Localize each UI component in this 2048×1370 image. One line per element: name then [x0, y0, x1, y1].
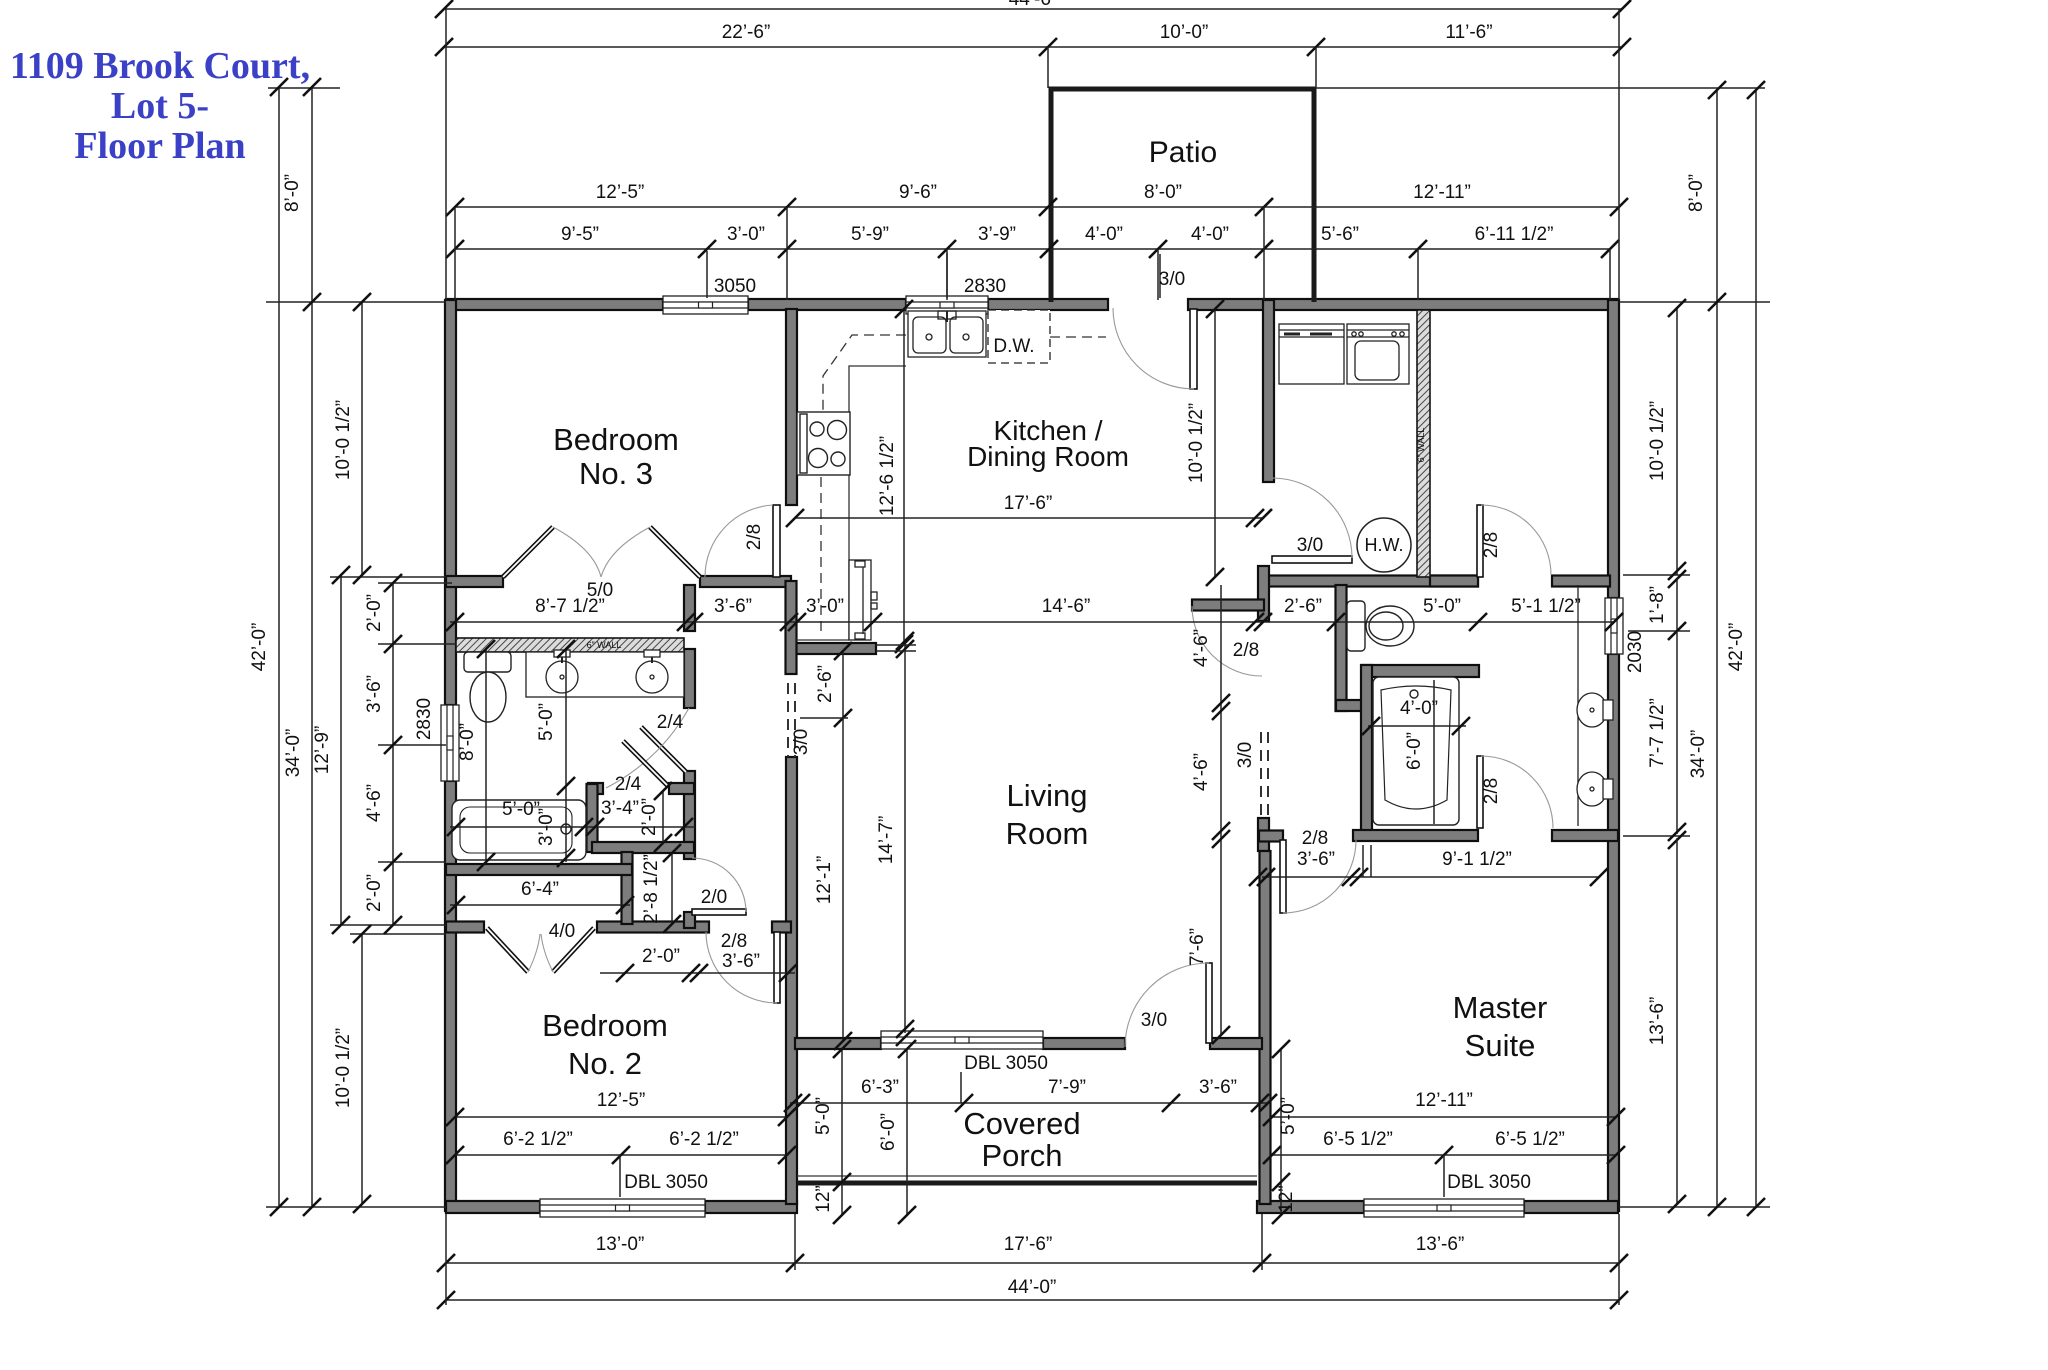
svg-text:1’-8”: 1’-8” — [1647, 586, 1668, 624]
svg-text:4’-0”: 4’-0” — [1085, 224, 1123, 245]
svg-text:5’-0”: 5’-0” — [536, 703, 557, 741]
svg-text:17’-6”: 17’-6” — [1004, 1234, 1053, 1255]
svg-text:34’-0”: 34’-0” — [283, 729, 304, 778]
svg-text:3/0: 3/0 — [1297, 535, 1323, 556]
svg-text:10’-0 1/2”: 10’-0 1/2” — [333, 400, 354, 480]
svg-text:5’-0”: 5’-0” — [813, 1097, 834, 1135]
svg-text:3050: 3050 — [714, 276, 756, 297]
svg-text:Living: Living — [1007, 778, 1088, 813]
svg-text:4’-0”: 4’-0” — [1191, 224, 1229, 245]
svg-text:2/4: 2/4 — [615, 774, 642, 795]
svg-text:2030: 2030 — [1625, 631, 1646, 673]
svg-text:Bedroom: Bedroom — [542, 1008, 668, 1043]
svg-text:12”: 12” — [1276, 1185, 1297, 1212]
svg-text:6’-2 1/2”: 6’-2 1/2” — [503, 1129, 573, 1150]
svg-text:9’-5”: 9’-5” — [561, 224, 599, 245]
svg-text:10’-0 1/2”: 10’-0 1/2” — [1186, 403, 1207, 483]
svg-text:2830: 2830 — [964, 276, 1006, 297]
svg-text:11’-6”: 11’-6” — [1445, 22, 1492, 43]
svg-text:1109 Brook Court,: 1109 Brook Court, — [10, 45, 310, 87]
svg-text:4’-6”: 4’-6” — [364, 784, 385, 822]
svg-text:12’-11”: 12’-11” — [1413, 182, 1471, 203]
svg-text:6” WALL: 6” WALL — [587, 640, 622, 650]
svg-text:7’-6”: 7’-6” — [1187, 928, 1208, 966]
svg-text:5’-0”: 5’-0” — [1278, 1097, 1299, 1135]
svg-text:10’-0 1/2”: 10’-0 1/2” — [1647, 401, 1668, 481]
svg-text:13’-6”: 13’-6” — [1647, 997, 1668, 1046]
svg-text:Room: Room — [1006, 816, 1089, 851]
svg-text:Lot 5-: Lot 5- — [111, 85, 209, 127]
svg-text:8’-0”: 8’-0” — [1144, 182, 1182, 203]
svg-text:No. 3: No. 3 — [579, 456, 653, 491]
svg-text:Floor Plan: Floor Plan — [74, 125, 245, 167]
svg-text:Dining Room: Dining Room — [967, 441, 1129, 472]
svg-text:9’-1 1/2”: 9’-1 1/2” — [1442, 849, 1512, 870]
svg-text:3/0: 3/0 — [791, 729, 812, 755]
svg-text:4’-6”: 4’-6” — [1191, 629, 1212, 667]
svg-text:13’-0”: 13’-0” — [596, 1234, 645, 1255]
svg-text:14’-6”: 14’-6” — [1042, 596, 1091, 617]
svg-text:No. 2: No. 2 — [568, 1046, 642, 1081]
svg-text:14’-7”: 14’-7” — [876, 816, 897, 865]
svg-text:6’-0”: 6’-0” — [878, 1113, 899, 1151]
svg-text:3’-9”: 3’-9” — [978, 224, 1016, 245]
svg-text:2/8: 2/8 — [744, 524, 765, 550]
svg-text:Porch: Porch — [982, 1138, 1063, 1173]
svg-text:4’-0”: 4’-0” — [1400, 698, 1438, 719]
svg-text:D.W.: D.W. — [993, 336, 1034, 357]
svg-text:22’-6”: 22’-6” — [722, 22, 771, 43]
svg-text:12’-5”: 12’-5” — [596, 182, 645, 203]
svg-text:3/0: 3/0 — [1141, 1010, 1167, 1031]
svg-text:2/8: 2/8 — [1481, 532, 1502, 558]
svg-text:12’-1”: 12’-1” — [814, 856, 835, 905]
svg-text:5’-6”: 5’-6” — [1321, 224, 1359, 245]
svg-text:3’-6”: 3’-6” — [1199, 1077, 1237, 1098]
svg-text:2/8: 2/8 — [1233, 640, 1259, 661]
svg-text:6’-2 1/2”: 6’-2 1/2” — [669, 1129, 739, 1150]
svg-text:6” WALL: 6” WALL — [1416, 428, 1426, 463]
svg-text:12’-6 1/2”: 12’-6 1/2” — [877, 436, 898, 516]
svg-text:2’-6”: 2’-6” — [1284, 596, 1322, 617]
svg-text:3’-0”: 3’-0” — [806, 596, 844, 617]
svg-text:3’-6”: 3’-6” — [722, 951, 760, 972]
svg-text:12’-11”: 12’-11” — [1415, 1090, 1473, 1111]
svg-text:2’-8 1/2”: 2’-8 1/2” — [641, 854, 662, 924]
svg-text:Covered: Covered — [963, 1106, 1080, 1141]
svg-text:17’-6”: 17’-6” — [1004, 493, 1053, 514]
svg-text:10’-0 1/2”: 10’-0 1/2” — [333, 1028, 354, 1108]
svg-text:6’-5 1/2”: 6’-5 1/2” — [1323, 1129, 1393, 1150]
svg-text:3’-0”: 3’-0” — [536, 808, 557, 846]
svg-text:3’-4”: 3’-4” — [601, 798, 639, 819]
svg-text:34’-0”: 34’-0” — [1688, 730, 1709, 779]
svg-text:12’-5”: 12’-5” — [597, 1090, 646, 1111]
svg-text:42’-0”: 42’-0” — [249, 623, 270, 672]
svg-text:8’-0”: 8’-0” — [1686, 174, 1707, 212]
svg-text:2’-0”: 2’-0” — [364, 594, 385, 632]
svg-text:8’-0”: 8’-0” — [282, 174, 303, 212]
svg-text:4/0: 4/0 — [549, 921, 575, 942]
svg-text:10’-0”: 10’-0” — [1160, 22, 1209, 43]
svg-text:2’-0”: 2’-0” — [642, 946, 680, 967]
svg-text:4’-6”: 4’-6” — [1191, 753, 1212, 791]
svg-text:44’-0”: 44’-0” — [1008, 1277, 1057, 1298]
svg-text:6’-0”: 6’-0” — [1404, 732, 1425, 770]
svg-text:2’-0”: 2’-0” — [639, 798, 660, 836]
svg-text:12”: 12” — [813, 1185, 834, 1212]
svg-text:7’-9”: 7’-9” — [1048, 1077, 1086, 1098]
svg-text:3’-6”: 3’-6” — [364, 675, 385, 713]
svg-text:6’-11 1/2”: 6’-11 1/2” — [1475, 224, 1554, 245]
svg-text:6’-4”: 6’-4” — [521, 879, 559, 900]
svg-text:6’-5 1/2”: 6’-5 1/2” — [1495, 1129, 1565, 1150]
svg-text:2830: 2830 — [414, 698, 435, 740]
svg-text:Suite: Suite — [1465, 1028, 1536, 1063]
svg-text:2/4: 2/4 — [657, 712, 684, 733]
svg-text:3’-6”: 3’-6” — [1297, 849, 1335, 870]
svg-text:44’-6”: 44’-6” — [1009, 0, 1058, 10]
svg-text:9’-6”: 9’-6” — [899, 182, 937, 203]
svg-text:42’-0”: 42’-0” — [1726, 623, 1747, 672]
svg-text:3’-6”: 3’-6” — [714, 596, 752, 617]
svg-text:2’-0”: 2’-0” — [364, 874, 385, 912]
svg-text:DBL 3050: DBL 3050 — [964, 1053, 1048, 1074]
svg-text:DBL 3050: DBL 3050 — [1447, 1172, 1531, 1193]
svg-text:2/0: 2/0 — [701, 887, 727, 908]
svg-text:2/8: 2/8 — [1481, 778, 1502, 804]
svg-text:5’-0”: 5’-0” — [502, 799, 540, 820]
svg-text:5’-9”: 5’-9” — [851, 224, 889, 245]
svg-text:7’-7 1/2”: 7’-7 1/2” — [1647, 698, 1668, 768]
svg-text:5’-0”: 5’-0” — [1423, 596, 1461, 617]
svg-text:3/0: 3/0 — [1159, 269, 1185, 290]
svg-text:H.W.: H.W. — [1365, 535, 1404, 555]
svg-text:12’-9”: 12’-9” — [312, 726, 333, 775]
svg-text:2/8: 2/8 — [721, 931, 747, 952]
svg-text:2’-6”: 2’-6” — [815, 665, 836, 703]
svg-text:8’-7 1/2”: 8’-7 1/2” — [535, 596, 605, 617]
svg-text:13’-6”: 13’-6” — [1416, 1234, 1465, 1255]
svg-text:5’-1 1/2”: 5’-1 1/2” — [1511, 596, 1581, 617]
svg-text:6’-3”: 6’-3” — [861, 1077, 899, 1098]
svg-text:3/0: 3/0 — [1235, 742, 1256, 768]
svg-text:Patio: Patio — [1149, 136, 1217, 169]
svg-text:Bedroom: Bedroom — [553, 422, 679, 457]
svg-text:2/8: 2/8 — [1302, 828, 1328, 849]
svg-text:DBL 3050: DBL 3050 — [624, 1172, 708, 1193]
svg-text:8’-0”: 8’-0” — [457, 723, 478, 761]
svg-text:Master: Master — [1453, 990, 1548, 1025]
svg-text:3’-0”: 3’-0” — [727, 224, 765, 245]
